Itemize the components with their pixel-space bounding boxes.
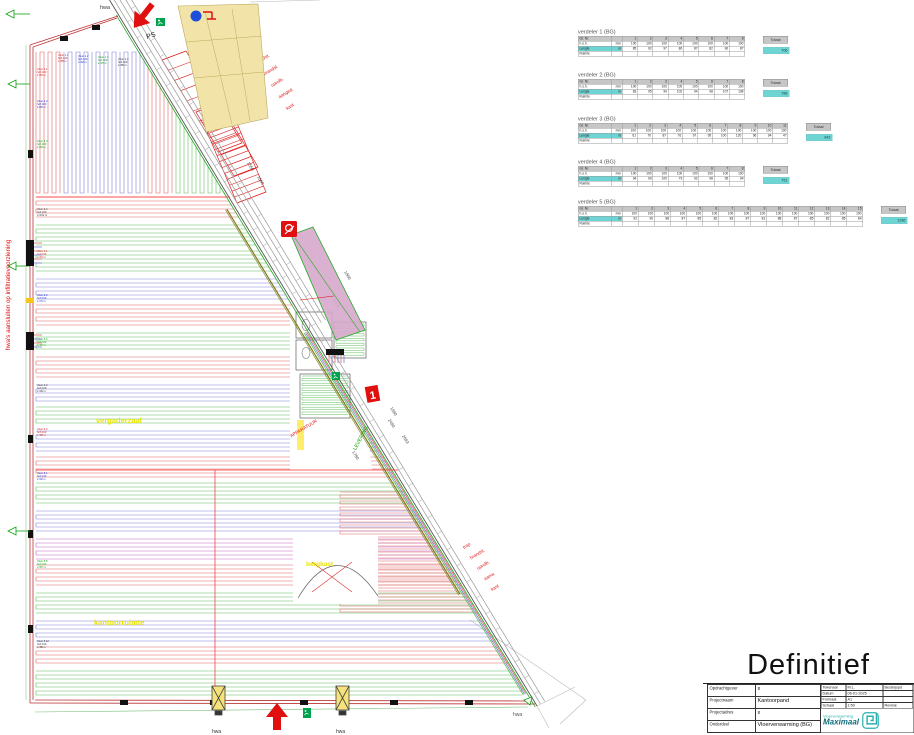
dimension-text: 1500 [256, 175, 265, 186]
group-label: L=97 m [37, 343, 46, 347]
loop-band [64, 52, 88, 193]
room-cell [653, 94, 668, 99]
verdeler-grid: Gr. Nr.12345678h.o.h.mm10010010010010010… [578, 79, 745, 100]
group-label: L=99 m [37, 145, 46, 149]
total-label: Totaal [806, 123, 831, 131]
mullion [457, 563, 461, 566]
room-cell [668, 94, 683, 99]
room-cell [652, 138, 667, 143]
room-label-vergaderzaal: vergaderzaal [96, 416, 142, 425]
unit-number-badge: 1 [365, 385, 381, 403]
loop-band [36, 251, 522, 271]
verdeler-grid: Gr. Nr.123456789101112131415h.o.h.mm1001… [578, 206, 863, 227]
evac-note: aanged. [277, 87, 294, 100]
group-label: L=86 m [118, 63, 127, 67]
tb-value: Vloerverwarming (BG) [756, 721, 821, 733]
room-cell [718, 221, 734, 226]
pier [28, 625, 33, 633]
mullion [486, 611, 490, 614]
group-label: L=85 m [58, 59, 67, 63]
mullion [215, 163, 219, 166]
room-cell [783, 221, 799, 226]
mullion [282, 275, 286, 278]
dimension-text: 2693 [401, 434, 410, 445]
walls [26, 16, 535, 712]
room-cell [638, 181, 653, 186]
room-label-kantoorruimte: kantoorruimte [94, 618, 144, 627]
group-label: L=92 m [78, 60, 87, 64]
loop-band [36, 457, 522, 477]
room-cell [638, 51, 653, 56]
ps-label: PS [146, 31, 157, 41]
loop-band [120, 52, 144, 193]
loop-band [36, 483, 522, 503]
room-cell [653, 51, 668, 56]
total-label: Totaal [763, 36, 788, 44]
room-cell [699, 94, 714, 99]
verdeler-table-4: verdeler 4 (BG)Gr. Nr.12345678h.o.h.mm10… [578, 159, 815, 187]
tb-label: Projectadres [708, 709, 756, 721]
mullion [296, 278, 300, 281]
room-cell [729, 181, 744, 186]
mullion [253, 227, 257, 230]
verdeler-title: verdeler 3 (BG) [578, 116, 858, 122]
room-cell [667, 138, 682, 143]
room-cell [767, 221, 783, 226]
loop-band [36, 511, 522, 531]
facade-line [305, 332, 524, 694]
floorplan-canvas: 15501500210018001990269324901780Vluchtr.… [0, 0, 914, 735]
room-cell [729, 94, 744, 99]
site-line [250, 0, 320, 2]
group-label: L=92 m [37, 477, 46, 481]
room-cell [638, 221, 654, 226]
mullion [447, 547, 451, 550]
room-cell [670, 221, 686, 226]
mullion [496, 627, 500, 630]
verdeler-table-5: verdeler 5 (BG)Gr. Nr.123456789101112131… [578, 199, 914, 227]
mullion [147, 51, 151, 54]
mullion [170, 70, 174, 73]
total-label: Totaal [763, 79, 788, 87]
room-cell [654, 221, 670, 226]
total-value: 1286 [881, 217, 908, 224]
mullion [277, 246, 281, 249]
verdeler-table-2: verdeler 2 (BG)Gr. Nr.12345678h.o.h.mm10… [578, 72, 815, 100]
hwa-label-col1: hwa [212, 729, 221, 735]
loop-band [92, 52, 116, 193]
mullion [418, 499, 422, 502]
mullion [195, 131, 199, 134]
group-label: L=83 m [37, 73, 46, 77]
verdeler-grid: Gr. Nr.12345678h.o.h.mm10010010010010010… [578, 36, 745, 57]
room-cell [622, 51, 637, 56]
tb-info: Tekenaar M.L. Besteljopd Datum 06-01-202… [821, 685, 914, 733]
mullion [292, 291, 296, 294]
pier [120, 700, 128, 705]
mullion [273, 259, 277, 262]
mullion [157, 67, 161, 70]
loop-band [36, 385, 522, 401]
room-cell [653, 181, 668, 186]
mullion [166, 83, 170, 86]
room-cell [847, 221, 863, 226]
loop-band [36, 197, 522, 217]
pier [28, 435, 33, 443]
tb-label: Onderdeel [708, 721, 756, 733]
room-cell [668, 51, 683, 56]
mullion [137, 35, 141, 38]
group-label: L=95 m [37, 105, 46, 109]
room-cell [728, 138, 743, 143]
mullion [534, 691, 538, 694]
room-cell [668, 181, 683, 186]
mullion [205, 147, 209, 150]
mullion [189, 102, 193, 105]
verdeler-title: verdeler 4 (BG) [578, 159, 815, 165]
room-cell [684, 181, 699, 186]
room-cell [831, 221, 847, 226]
canopy-area [178, 4, 268, 132]
stair-step [212, 133, 241, 144]
evac-note: trap [462, 541, 472, 550]
mullion [370, 419, 374, 422]
loop-band [36, 357, 522, 377]
row-label: Ruimte [578, 51, 612, 56]
loop-band [36, 647, 522, 663]
room-cell [622, 181, 637, 186]
mullion [379, 435, 383, 438]
group-label: L=102 m [37, 213, 47, 217]
stair-step [217, 145, 246, 156]
facade-line [307, 332, 526, 694]
exit-sign-icon [156, 18, 165, 26]
room-cell [699, 51, 714, 56]
mullion [180, 86, 184, 89]
site-line [470, 620, 586, 700]
dimension-text: 1550 [246, 161, 255, 172]
room-cell [684, 94, 699, 99]
wall [30, 703, 535, 704]
loop-band [36, 333, 522, 349]
total-value: 751 [763, 177, 790, 184]
mullion [467, 579, 471, 582]
mullion [257, 214, 261, 217]
verdeler-grid: Gr. Nr.1234567891011h.o.h.mm100100100100… [578, 123, 788, 144]
row-label: Ruimte [578, 221, 612, 226]
room-cell [638, 94, 653, 99]
group-label: L=99 m [37, 389, 46, 393]
tb-label: Opdrachtgever [708, 685, 756, 697]
drawing-sheet: 15501500210018001990269324901780Vluchtr.… [0, 0, 914, 735]
mullion [267, 230, 271, 233]
stair-step [235, 186, 264, 197]
hwa-label-right: hwa [513, 712, 522, 718]
mullion [306, 294, 310, 297]
verdeler-title: verdeler 2 (BG) [578, 72, 815, 78]
room-cell [773, 138, 788, 143]
room-cell [799, 221, 815, 226]
evac-note: aanw. [483, 571, 496, 581]
room-cell [702, 221, 718, 226]
loop-band [36, 671, 522, 695]
total-label: Totaal [881, 206, 906, 214]
pier [60, 36, 68, 41]
tb-value: x [756, 685, 821, 697]
verdeler-title: verdeler 5 (BG) [578, 199, 914, 205]
mullion [476, 595, 480, 598]
room-cell [712, 138, 727, 143]
title-block: Opdrachtgever x Projectnaam Kantoorpand … [707, 684, 914, 733]
loop-band [36, 225, 522, 245]
pier [300, 700, 308, 705]
evac-note: oprolb. [476, 559, 491, 571]
company-logo: Vloerverwarming Maximaal [821, 709, 914, 733]
row-label: Ruimte [578, 138, 612, 143]
wall [35, 700, 530, 701]
wall [33, 18, 117, 47]
mullion [399, 467, 403, 470]
mullion [525, 675, 529, 678]
group-label: L=97 m [98, 61, 107, 65]
group-label: L=85 m [37, 645, 46, 649]
mullion [286, 262, 290, 265]
mullion [428, 515, 432, 518]
pier [28, 150, 33, 158]
pier [92, 25, 100, 30]
room-cell [682, 138, 697, 143]
room-cell [734, 221, 750, 226]
mullion [160, 54, 164, 57]
fire-hose-reel-icon [281, 221, 297, 237]
verdeler-table-3: verdeler 3 (BG)Gr. Nr.1234567891011h.o.h… [578, 116, 858, 144]
room-cell [751, 221, 767, 226]
mullion [186, 115, 190, 118]
hwa-label-col2: hwa [336, 729, 345, 735]
bergkast-area [293, 536, 378, 604]
mullion [244, 211, 248, 214]
wall [30, 16, 118, 45]
toilet-fixture [302, 348, 310, 359]
logo-line2: Maximaal [823, 719, 859, 727]
row-label: Ruimte [578, 94, 612, 99]
spiral-logo-icon [862, 712, 879, 729]
hwa-label-top: hwa [100, 5, 111, 11]
total-label: Totaal [763, 166, 788, 174]
heating-loops [36, 52, 522, 695]
evac-note: oprolb. [270, 76, 285, 88]
evac-note: brandsl. [469, 548, 486, 561]
mullion [389, 451, 393, 454]
room-cell [729, 51, 744, 56]
exit-sign-icon [303, 708, 311, 718]
room-cell [697, 138, 712, 143]
verdeler-grid: Gr. Nr.12345678h.o.h.mm10010010010010010… [578, 166, 745, 187]
note-infiltratie: hwa's aansluiten op infiltratievoorzieni… [5, 239, 12, 350]
room-cell [714, 94, 729, 99]
loop-band [36, 431, 522, 451]
site-line [537, 706, 549, 728]
room-cell [622, 94, 637, 99]
loop-band [36, 305, 522, 325]
mullion [127, 19, 131, 22]
verdeler-table-1: verdeler 1 (BG)Gr. Nr.12345678h.o.h.mm10… [578, 29, 815, 57]
room-cell [743, 138, 758, 143]
room-cell [758, 138, 773, 143]
exit-sign-icon [332, 372, 340, 380]
dimension-text: 1990 [389, 406, 398, 417]
pier [465, 700, 473, 705]
room-cell [714, 51, 729, 56]
highlight-strip [297, 420, 304, 450]
mullion [238, 182, 242, 185]
tb-label: Projectnaam [708, 697, 756, 709]
site-line [560, 700, 586, 724]
group-label: L=61 m [37, 255, 46, 259]
tb-value: x [756, 709, 821, 721]
room-cell [815, 221, 831, 226]
room-cell [637, 138, 652, 143]
dimension-text: 1800 [343, 270, 352, 281]
group-label: L=98 m [37, 433, 46, 437]
status-title: Definitief [703, 649, 914, 684]
room-cell [684, 51, 699, 56]
room-label-bergkast: bergkast [306, 561, 334, 568]
total-value: 943 [806, 134, 833, 141]
tb-value: Kantoorpand [756, 697, 821, 709]
verdeler-title: verdeler 1 (BG) [578, 29, 815, 35]
group-label: L=70 m [37, 299, 46, 303]
mullion [131, 6, 135, 9]
mullion [515, 659, 519, 662]
mullion [263, 243, 267, 246]
room-cell [686, 221, 702, 226]
site-line [537, 687, 575, 706]
total-value: 706 [763, 47, 790, 54]
group-label: L=87 m [37, 565, 46, 569]
entrance-arrow-icon [266, 703, 288, 730]
room-cell [622, 221, 638, 226]
room-cell [699, 181, 714, 186]
evac-note: kast [490, 583, 500, 592]
room-cell [714, 181, 729, 186]
room-cell [622, 138, 637, 143]
evac-note: kast [285, 102, 295, 111]
mullion [408, 483, 412, 486]
dimension-text: 2490 [387, 418, 396, 429]
mullion [437, 531, 441, 534]
mullion [176, 99, 180, 102]
total-value: 786 [763, 90, 790, 97]
row-label: Ruimte [578, 181, 612, 186]
evac-note: brandsl. [262, 64, 279, 77]
pier [390, 700, 398, 705]
